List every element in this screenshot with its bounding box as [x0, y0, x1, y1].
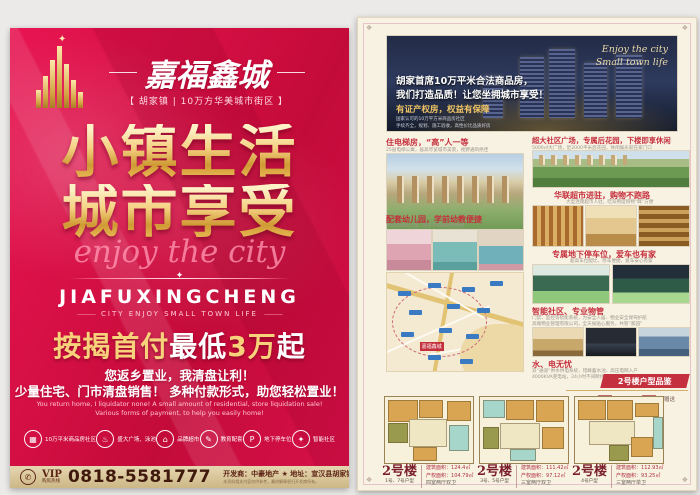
headline-line2: 城市享受: [10, 184, 349, 241]
smart-community-icon: ✦: [292, 430, 310, 448]
kindergarten-photo: [478, 229, 524, 271]
feature-label: 地下停车位: [264, 435, 292, 443]
ribbon-text: 2号楼户型品鉴: [618, 376, 672, 387]
supermarket-photo: [585, 205, 637, 247]
headline-line1: 小镇生活: [10, 124, 349, 181]
floorplan-caption: 2号楼 4号户型 建筑面积：112.93㎡ 产权面积：93.25㎡ 三室两厅单卫: [572, 465, 664, 488]
brand-towers-icon: [36, 44, 83, 108]
brand-row: 嘉福鑫城: [88, 50, 325, 95]
promo-english-2: Various forms of payment, to help you ea…: [10, 409, 349, 417]
hero-script-line2: Small town life: [596, 57, 668, 70]
hero-highlight: 有证产权房，权益有保障: [396, 103, 490, 115]
built-area: 建筑面积：111.42㎡: [521, 465, 569, 473]
hero-script-line1: Enjoy the city: [596, 44, 668, 57]
tower-bar: [64, 64, 69, 108]
hero-headline-1: 胡家首席10万平米合法商品房，: [396, 73, 533, 87]
hero-headline-2: 我们打造品质！让您坐拥城市享受！: [396, 87, 548, 101]
room-block: [413, 447, 437, 461]
tower-shape: [584, 63, 607, 118]
kindergarten-photo: [386, 229, 432, 271]
contact-footer-bar: ✆ VIP 购房热线 0818-5581777 开发商：中豪地产 ★ 地址：宣汉…: [10, 466, 349, 488]
garage-photo: [532, 264, 610, 304]
room-block: [419, 400, 443, 418]
corner-ornament-icon: ❖: [682, 476, 688, 484]
room-block: [447, 401, 471, 421]
floorplan-caption: 2号楼 1号、7号户型 建筑面积：124.4㎡ 产权面积：104.79㎡ 四室两…: [382, 465, 474, 488]
sparkle-icon: ✦: [58, 34, 66, 45]
unit-numbers: 4号户型: [581, 479, 598, 484]
offer-prefix: 按揭首付: [53, 330, 169, 363]
brand-name: 嘉福鑫城: [145, 50, 269, 95]
hotline-text: 购房热线: [42, 480, 62, 485]
built-area: 建筑面积：124.4㎡: [426, 465, 474, 473]
plan-details: 建筑面积：124.4㎡ 产权面积：104.79㎡ 四室两厅双卫: [421, 465, 474, 488]
plaza-fountain-icon: ♨: [96, 430, 114, 448]
offer-mid: 最低: [169, 330, 227, 363]
unit-numbers: 3号、5号户型: [480, 479, 509, 484]
room-block: [631, 437, 653, 457]
divider-line: [68, 278, 291, 279]
property-photo: [585, 327, 637, 357]
brand-line: [277, 72, 305, 73]
property-photo: [638, 327, 690, 357]
building-label: 2号楼 1号、7号户型: [382, 465, 417, 484]
room-layout: 三室两厅双卫: [521, 480, 569, 488]
kindergarten-photo: [432, 229, 478, 271]
building-name: 2号楼: [477, 465, 512, 479]
room-block: [635, 403, 659, 417]
floorplan-drawing: [479, 396, 569, 464]
map-poi-chip: [428, 283, 441, 288]
tower-bar: [57, 46, 62, 108]
left-page: ✦ 嘉福鑫城 【 胡家镇 | 10万方华美城市街区 】 小镇生活 城市享受 en…: [10, 28, 349, 488]
developer-name: 开发商：中豪地产 ★: [223, 470, 288, 478]
feature-item: ♨ 盛大广场、泳池: [96, 430, 156, 448]
feature-icon-row: ▦ 10万平米商品房社区 ♨ 盛大广场、泳池 ⌂ 品牌超市 ✎ 教育配套 P 地…: [24, 430, 335, 448]
supermarket-photo: [532, 205, 584, 247]
room-layout: 三室两厅单卫: [616, 480, 664, 488]
feature-item: ▦ 10万平米商品房社区: [24, 430, 96, 448]
plaza-garden-photo: [532, 150, 690, 188]
title-area: 产权面积：93.25㎡: [616, 473, 664, 481]
supermarket-photo: [638, 205, 690, 247]
brand-pinyin: JIAFUXINGCHENG: [10, 286, 349, 308]
hotline-phone-number: 0818-5581777: [68, 467, 211, 487]
feature-item: ⌂ 品牌超市: [156, 430, 199, 448]
map-poi-chip: [409, 310, 422, 315]
vip-hotline-label: VIP 购房热线: [42, 470, 62, 485]
map-poi-chip: [490, 281, 503, 286]
title-area: 产权面积：104.79㎡: [426, 473, 474, 481]
tower-bar: [78, 92, 83, 108]
parking-icon: P: [243, 430, 261, 448]
room-block: [607, 400, 633, 420]
tower-shape: [549, 49, 575, 117]
ribbon-underline: [566, 390, 688, 391]
room-block: [609, 445, 629, 461]
community-building-icon: ▦: [24, 430, 42, 448]
divider-sparkle-icon: ✦: [10, 271, 349, 281]
map-poi-chip: [466, 334, 479, 339]
promo-line-2: 少量住宅、门市清盘销售！ 多种付款形式，助您轻松置业！: [10, 381, 349, 400]
offer-suffix: 起: [277, 330, 306, 363]
floorplan-drawing: [574, 396, 664, 464]
room-layout: 四室两厅双卫: [426, 480, 474, 488]
map-poi-chip: [460, 359, 473, 364]
feature-item: ✎ 教育配套: [200, 430, 243, 448]
tower-bar: [71, 80, 76, 108]
footer-disclaimer: 本资料相关内容仅供参考，最终解释权归开发商所有。: [223, 479, 349, 484]
right-page: ❖ ❖ ❖ ❖ 胡家首席10万平米合法商品房， 我们打造品质！让您坐拥城市享受！…: [357, 17, 697, 491]
tower-bar: [43, 76, 48, 108]
developer-block: 开发商：中豪地产 ★ 地址：宣汉县胡家镇南北大道 本资料相关内容仅供参考，最终解…: [223, 470, 349, 485]
feature-label: 品牌超市: [177, 435, 199, 443]
supermarket-icon: ⌂: [156, 430, 174, 448]
corner-ornament-icon: ❖: [366, 24, 372, 32]
plan-details: 建筑面积：112.93㎡ 产权面积：93.25㎡ 三室两厅单卫: [611, 465, 664, 488]
developer-address: 开发商：中豪地产 ★ 地址：宣汉县胡家镇南北大道: [223, 470, 349, 479]
feature-item: ✦ 智能社区: [292, 430, 335, 448]
education-icon: ✎: [200, 430, 218, 448]
map-poi-chip: [401, 332, 414, 337]
promo-english-1: You return home, I liquidator none! A sm…: [10, 400, 349, 408]
unit-numbers: 1号、7号户型: [385, 479, 414, 484]
floorplan-caption: 2号楼 3号、5号户型 建筑面积：111.42㎡ 产权面积：97.12㎡ 三室两…: [477, 465, 569, 488]
building-label: 2号楼 3号、5号户型: [477, 465, 512, 484]
brand-tagline: CITY ENJOY SMALL TOWN LIFE: [10, 310, 349, 318]
tower-bar: [50, 60, 55, 108]
room-block: [449, 425, 469, 451]
map-project-label: 嘉福鑫城: [420, 342, 444, 351]
room-block: [510, 449, 536, 461]
project-address: 地址：宣汉县胡家镇南北大道: [290, 470, 349, 478]
room-block: [589, 421, 635, 445]
garage-photo: [612, 264, 690, 304]
map-poi-chip: [447, 304, 460, 309]
room-block: [506, 400, 534, 420]
corner-ornament-icon: ❖: [682, 24, 688, 32]
offer-amount: 3万: [227, 330, 276, 363]
map-poi-chip: [428, 355, 441, 360]
map-poi-chip: [462, 287, 475, 292]
brand-line: [109, 72, 137, 73]
room-block: [542, 427, 564, 449]
floorplan-ribbon: 2号楼户型品鉴: [600, 374, 689, 388]
corner-ornament-icon: ❖: [366, 476, 372, 484]
room-block: [388, 423, 408, 443]
room-block: [536, 400, 564, 422]
map-poi-chip: [477, 308, 490, 313]
hero-note-1: 国家认可的10万平方米商品房社区: [396, 116, 465, 122]
phone-icon: ✆: [20, 469, 36, 485]
room-block: [653, 417, 663, 449]
feature-label: 盛大广场、泳池: [117, 435, 156, 443]
room-block: [500, 423, 540, 449]
hero-corner-script: Enjoy the city Small town life: [596, 44, 668, 70]
location-map: 嘉福鑫城: [386, 272, 524, 372]
map-poi-chip: [439, 328, 452, 333]
room-block: [483, 400, 505, 418]
tower-bar: [36, 90, 41, 108]
title-area: 产权面积：97.12㎡: [521, 473, 569, 481]
building-name: 2号楼: [382, 465, 417, 479]
feature-label: 10万平米商品房社区: [45, 435, 96, 443]
hero-note-2: 手续齐全，规划、施工验收，高性价比品质好房: [396, 123, 491, 129]
floorplan-drawing: [384, 396, 474, 464]
feature-label: 教育配套: [221, 435, 243, 443]
plan-details: 建筑面积：111.42㎡ 产权面积：97.12㎡ 三室两厅双卫: [516, 465, 569, 488]
brand-subtitle: 【 胡家镇 | 10万方华美城市街区 】: [88, 94, 325, 107]
map-poi-chip: [398, 291, 411, 296]
flyer-canvas: ✦ 嘉福鑫城 【 胡家镇 | 10万方华美城市街区 】 小镇生活 城市享受 en…: [0, 0, 700, 495]
room-block: [483, 427, 499, 449]
hero-night-aerial-photo: 胡家首席10万平米合法商品房， 我们打造品质！让您坐拥城市享受！ 有证产权房，权…: [386, 35, 678, 132]
building-name: 2号楼: [572, 465, 607, 479]
room-block: [409, 419, 447, 447]
feature-item: P 地下停车位: [243, 430, 292, 448]
room-block: [578, 400, 606, 420]
feature-label: 智能社区: [313, 435, 335, 443]
offer-headline: 按揭首付最低3万起: [10, 325, 349, 365]
building-label: 2号楼 4号户型: [572, 465, 607, 484]
built-area: 建筑面积：112.93㎡: [616, 465, 664, 473]
property-photo: [532, 327, 584, 357]
